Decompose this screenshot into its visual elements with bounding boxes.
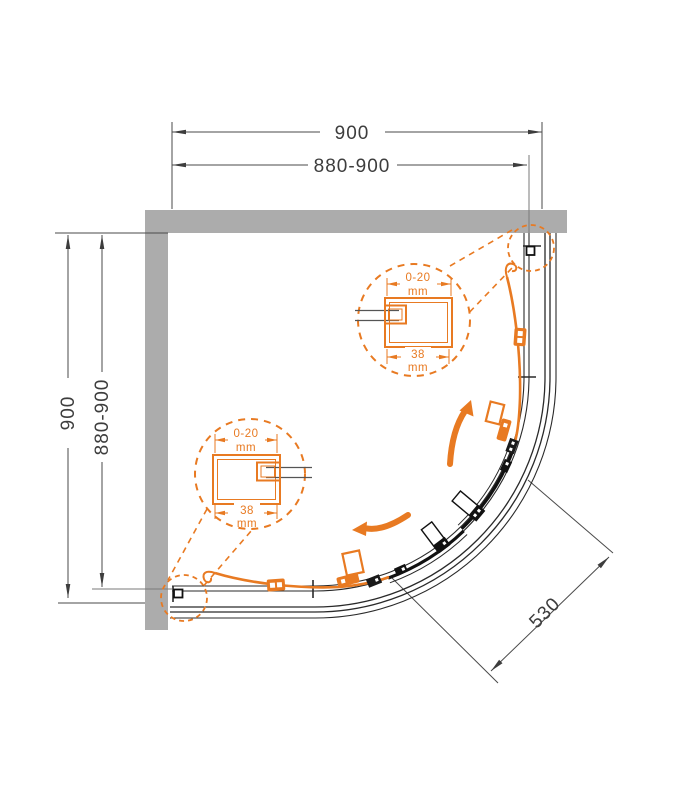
door-panel-1-inner-line xyxy=(458,448,509,526)
detail-bottom-range-unit: mm xyxy=(236,442,256,454)
arrowhead-icon xyxy=(172,130,186,135)
callout-line xyxy=(201,523,258,589)
detail-callout-bottom: 0-20 mm 38 mm xyxy=(195,419,312,530)
arrowhead-icon xyxy=(598,557,610,568)
door-roller-bracket-icon xyxy=(267,578,286,591)
technical-drawing-page: 900 880-900 900 880-900 530 xyxy=(0,0,686,800)
arrowhead-icon xyxy=(528,130,542,135)
door-roller-bracket-icon xyxy=(513,328,526,347)
arrowhead-icon xyxy=(513,163,527,168)
detail-top-range-unit: mm xyxy=(408,286,428,298)
callout-line xyxy=(168,509,207,580)
arrowhead-icon xyxy=(172,163,186,168)
arrowhead-icon xyxy=(66,235,71,249)
detail-top-width-unit: mm xyxy=(408,362,428,374)
wall-anchor-bottom-icon xyxy=(174,590,183,598)
arrowhead-icon xyxy=(100,235,105,249)
dim-label-top-adjustable: 880-900 xyxy=(314,156,391,177)
detail-bottom-width-unit: mm xyxy=(237,518,257,530)
door-handle-bottom-icon xyxy=(342,550,363,575)
door-motion-arrow-up xyxy=(450,400,474,464)
dim-label-top-outer: 900 xyxy=(335,123,370,144)
dim-label-left-outer: 900 xyxy=(58,396,79,431)
arrowhead-icon xyxy=(352,522,367,537)
dim-label-radius: 530 xyxy=(525,593,564,632)
arrowhead-icon xyxy=(100,573,105,587)
wall-left xyxy=(145,210,168,630)
dim-label-left-adjustable: 880-900 xyxy=(92,379,113,456)
arrowhead-icon xyxy=(491,660,503,671)
callout-line xyxy=(450,230,512,266)
arrowhead-icon xyxy=(66,584,71,598)
wall-top xyxy=(145,210,567,233)
detail-top-range-label: 0-20 xyxy=(405,272,430,284)
glass-line-2 xyxy=(172,233,529,591)
wall-anchor-top-icon xyxy=(527,247,535,256)
door-bottom-end-hook-icon xyxy=(203,572,215,582)
dimension-lines xyxy=(55,122,613,683)
detail-bottom-range-label: 0-20 xyxy=(233,428,258,440)
detail-callout-top: 0-20 mm 38 mm xyxy=(355,264,470,376)
dim-ext-radius-ne xyxy=(528,480,613,553)
door-motion-arrow-left xyxy=(352,515,408,536)
shower-enclosure-plan-svg: 900 880-900 900 880-900 530 xyxy=(0,0,686,800)
detail-top-width-label: 38 xyxy=(411,349,425,361)
roller-icon xyxy=(505,438,518,454)
door-top-end-hook-icon xyxy=(506,264,516,277)
detail-bottom-width-label: 38 xyxy=(240,505,254,517)
